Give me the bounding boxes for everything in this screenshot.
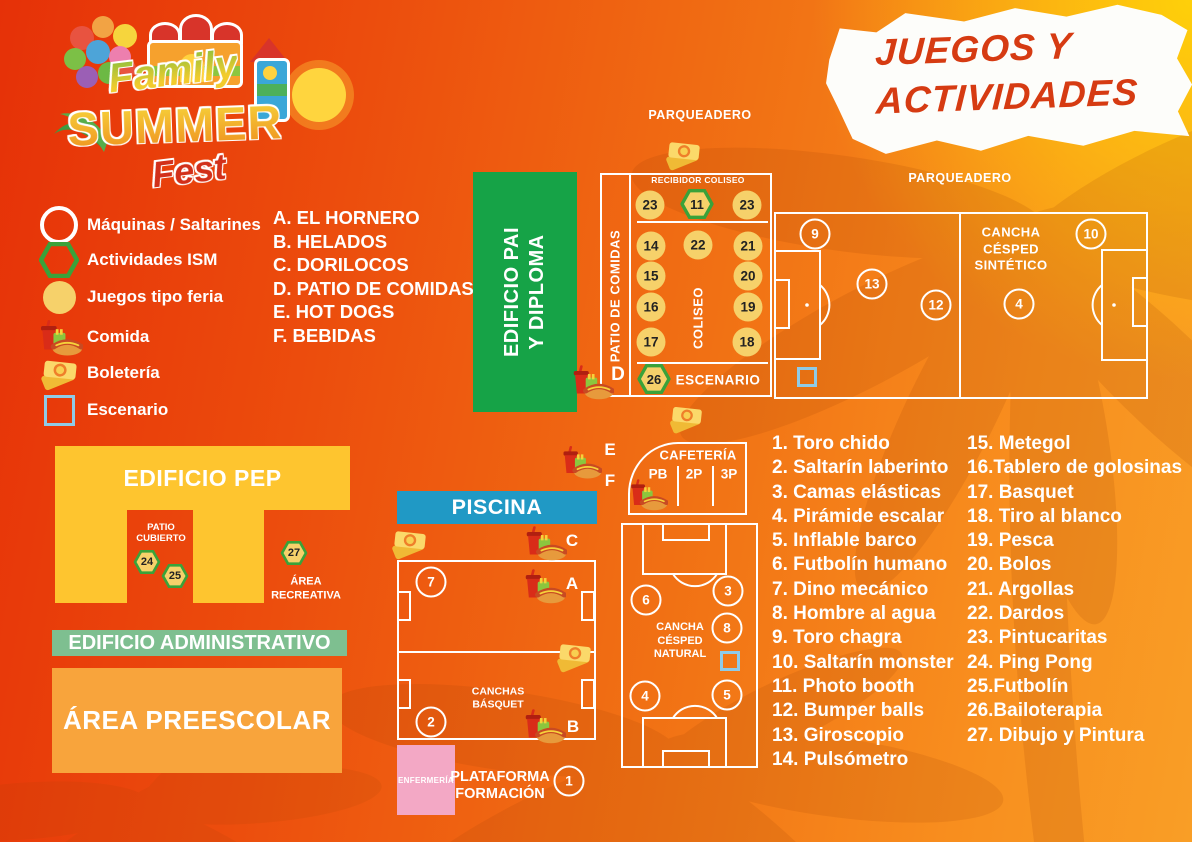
legend-label: Juegos tipo feria <box>87 287 223 307</box>
ticket-icon <box>662 135 704 173</box>
activity-item: 26.Bailoterapia <box>967 699 1182 723</box>
legend-label: Escenario <box>87 400 168 420</box>
cafeteria-floor-3p: 3P <box>721 467 738 482</box>
food-icon <box>521 524 567 562</box>
marker-sintetica-10: 10 <box>1076 219 1107 250</box>
edificio-pep-building: EDIFICIO PEP <box>55 446 350 510</box>
marker-number: 27 <box>281 541 308 565</box>
balloon <box>113 24 137 48</box>
coliseo-line-top <box>637 221 768 223</box>
food-icon <box>568 363 614 401</box>
marker-coliseo-16: 16 <box>637 293 666 322</box>
marker-coliseo-26: 26 <box>637 364 671 394</box>
legend-label: Boletería <box>87 363 160 383</box>
page-title-line2: ACTIVIDADES <box>875 71 1139 122</box>
activities-list-col2: 15. Metegol 16.Tablero de golosinas 17. … <box>967 432 1182 748</box>
marker-number: 14 <box>643 239 658 254</box>
tower-window-icon <box>263 66 277 80</box>
activity-item: 11. Photo booth <box>772 675 954 699</box>
parqueadero-right-label: PARQUEADERO <box>908 171 1011 185</box>
marker-number: 20 <box>740 269 755 284</box>
food-icon <box>33 318 85 357</box>
activity-item: 20. Bolos <box>967 553 1182 577</box>
ticket-icon <box>553 637 595 675</box>
marker-number: 3 <box>724 584 732 599</box>
marker-coliseo-22: 22 <box>684 231 713 260</box>
logo-word-summer: SUMMER <box>51 94 299 158</box>
activity-item: 4. Pirámide escalar <box>772 505 954 529</box>
marker-coliseo-21: 21 <box>734 232 763 261</box>
marker-basquet-2: 2 <box>416 707 447 738</box>
marker-number: 2 <box>427 715 435 730</box>
enfermeria-label: ENFERMERÍA <box>398 776 454 785</box>
marker-number: 8 <box>723 621 731 636</box>
legend-letter-f: F. BEBIDAS <box>273 324 474 348</box>
ticket-icon <box>666 400 706 436</box>
activity-item: 7. Dino mecánico <box>772 578 954 602</box>
activity-item: 1. Toro chido <box>772 432 954 456</box>
legend-letter-b: B. HELADOS <box>273 230 474 254</box>
marker-coliseo-14: 14 <box>637 232 666 261</box>
marker-number: 11 <box>680 189 714 219</box>
patio-cubierto-label: PATIO CUBIERTO <box>136 522 185 544</box>
marker-sintetica-4: 4 <box>1004 289 1035 320</box>
square-outline-icon <box>33 395 85 426</box>
parqueadero-left-label: PARQUEADERO <box>648 108 751 122</box>
marker-number: 18 <box>739 335 754 350</box>
map-letter-e: E <box>604 440 615 460</box>
page-title-line1: JUEGOS Y <box>874 25 1073 74</box>
sun-icon <box>292 68 346 122</box>
activity-item: 27. Dibujo y Pintura <box>967 724 1182 748</box>
map-letter-c: C <box>566 531 578 551</box>
marker-number: 1 <box>565 774 573 789</box>
activity-item: 22. Dardos <box>967 602 1182 626</box>
patio-de-comidas-label: PATIO DE COMIDAS <box>608 230 623 362</box>
legend-letter-d: D. PATIO DE COMIDAS <box>273 277 474 301</box>
activity-item: 18. Tiro al blanco <box>967 505 1182 529</box>
legend-label: Máquinas / Saltarines <box>87 215 261 235</box>
marker-natural-6: 6 <box>631 585 662 616</box>
family-summer-fest-logo: Family SUMMER Fest <box>52 10 352 210</box>
edificio-administrativo-building: EDIFICIO ADMINISTRATIVO <box>52 630 347 656</box>
activity-item: 17. Basquet <box>967 481 1182 505</box>
activity-item: 8. Hombre al agua <box>772 602 954 626</box>
cafeteria-divider <box>712 466 714 506</box>
area-preescolar-building: ÁREA PREESCOLAR <box>52 668 342 773</box>
marker-number: 6 <box>642 593 650 608</box>
edificio-administrativo-label: EDIFICIO ADMINISTRATIVO <box>68 632 330 655</box>
canchas-basquet-label: CANCHAS BÁSQUET <box>472 686 525 711</box>
activity-item: 2. Saltarín laberinto <box>772 456 954 480</box>
legend-row-comida: Comida <box>33 319 149 355</box>
plataforma-formacion-label: PLATAFORMA FORMACIÓN <box>450 769 549 803</box>
cafeteria-divider <box>677 466 679 506</box>
marker-natural-5: 5 <box>712 680 743 711</box>
marker-coliseo-23-right: 23 <box>733 191 762 220</box>
food-icon <box>558 444 602 480</box>
activity-item: 6. Futbolín humano <box>772 553 954 577</box>
edificio-pep-left-wing <box>55 510 127 603</box>
marker-coliseo-20: 20 <box>734 262 763 291</box>
marker-number: 10 <box>1083 227 1098 242</box>
legend-row-juegos: Juegos tipo feria <box>33 279 223 315</box>
cancha-natural-label: CANCHA CÉSPED NATURAL <box>654 621 706 662</box>
legend-label: Comida <box>87 327 149 347</box>
marker-number: 9 <box>811 227 819 242</box>
map-letter-f: F <box>605 471 615 491</box>
circle-outline-icon <box>33 206 85 244</box>
activity-item: 12. Bumper balls <box>772 699 954 723</box>
marker-natural-4: 4 <box>630 681 661 712</box>
coliseo-label: COLISEO <box>691 287 706 349</box>
legend-row-maquinas: Máquinas / Saltarines <box>33 207 261 243</box>
activity-item: 19. Pesca <box>967 529 1182 553</box>
area-recreativa-label: ÁREA RECREATIVA <box>271 576 341 603</box>
logo-word-fest: Fest <box>150 146 229 197</box>
legend-row-actividades: Actividades ISM <box>33 242 217 278</box>
activity-item: 9. Toro chagra <box>772 626 954 650</box>
enfermeria-building: ENFERMERÍA <box>397 745 455 815</box>
balloon <box>76 66 98 88</box>
map-letter-a: A <box>566 574 578 594</box>
title-brush-background: JUEGOS Y ACTIVIDADES <box>825 0 1192 161</box>
legend-letter-a: A. EL HORNERO <box>273 206 474 230</box>
area-preescolar-label: ÁREA PREESCOLAR <box>63 705 331 736</box>
marker-natural-8: 8 <box>712 613 743 644</box>
marker-number: 4 <box>1015 297 1023 312</box>
recibidor-coliseo-label: RECIBIDOR COLISEO <box>651 175 744 185</box>
activity-item: 15. Metegol <box>967 432 1182 456</box>
marker-pep-25: 25 <box>162 564 189 588</box>
cafeteria-floor-2p: 2P <box>686 467 703 482</box>
marker-pep-24: 24 <box>134 550 161 574</box>
activity-item: 16.Tablero de golosinas <box>967 456 1182 480</box>
legend-letter-e: E. HOT DOGS <box>273 300 474 324</box>
activity-item: 3. Camas elásticas <box>772 481 954 505</box>
marker-coliseo-15: 15 <box>637 262 666 291</box>
marker-number: 15 <box>643 269 658 284</box>
marker-number: 16 <box>643 300 658 315</box>
food-letter-legend: A. EL HORNERO B. HELADOS C. DORILOCOS D.… <box>273 206 474 348</box>
escenario-square-sintetica <box>797 367 817 387</box>
marker-number: 13 <box>864 277 879 292</box>
edificio-pep-center-wing <box>193 510 264 603</box>
escenario-square-natural <box>720 651 740 671</box>
marker-number: 24 <box>134 550 161 574</box>
activity-item: 21. Argollas <box>967 578 1182 602</box>
map-letter-b: B <box>567 717 579 737</box>
marker-number: 19 <box>740 300 755 315</box>
coliseo-divider <box>629 173 631 397</box>
marker-number: 21 <box>740 239 755 254</box>
marker-number: 17 <box>643 335 658 350</box>
marker-coliseo-17: 17 <box>637 328 666 357</box>
marker-natural-3: 3 <box>713 576 744 607</box>
marker-coliseo-18: 18 <box>733 328 762 357</box>
piscina-label: PISCINA <box>452 495 543 520</box>
legend-row-escenario: Escenario <box>33 392 168 428</box>
marker-number: 23 <box>642 198 657 213</box>
marker-number: 12 <box>928 298 943 313</box>
legend-letter-c: C. DORILOCOS <box>273 253 474 277</box>
escenario-label: ESCENARIO <box>676 373 761 388</box>
legend-label: Actividades ISM <box>87 250 217 270</box>
activities-list-col1: 1. Toro chido 2. Saltarín laberinto 3. C… <box>772 432 954 772</box>
marker-coliseo-19: 19 <box>734 293 763 322</box>
marker-number: 25 <box>162 564 189 588</box>
piscina-building: PISCINA <box>397 491 597 524</box>
ticket-icon <box>388 524 430 562</box>
activity-item: 14. Pulsómetro <box>772 748 954 772</box>
activity-item: 5. Inflable barco <box>772 529 954 553</box>
hexagon-outline-icon <box>33 242 85 278</box>
marker-coliseo-11: 11 <box>680 189 714 219</box>
marker-number: 26 <box>637 364 671 394</box>
ticket-icon <box>33 353 85 393</box>
marker-pep-27: 27 <box>281 541 308 565</box>
food-icon <box>626 477 668 512</box>
edificio-pep-label: EDIFICIO PEP <box>123 465 281 492</box>
legend-row-boleteria: Boletería <box>33 355 160 391</box>
activity-item: 24. Ping Pong <box>967 651 1182 675</box>
yellow-circle-icon <box>33 281 85 314</box>
food-icon <box>520 567 566 605</box>
activity-item: 25.Futbolín <box>967 675 1182 699</box>
marker-number: 4 <box>641 689 649 704</box>
marker-sintetica-12: 12 <box>921 290 952 321</box>
activity-item: 23. Pintucaritas <box>967 626 1182 650</box>
edificio-pai-label: EDIFICIO PAI Y DIPLOMA <box>500 227 550 357</box>
activity-item: 13. Giroscopio <box>772 724 954 748</box>
activity-item: 10. Saltarín monster <box>772 651 954 675</box>
marker-number: 5 <box>723 688 731 703</box>
cafeteria-label: CAFETERÍA <box>659 448 736 463</box>
food-icon <box>520 707 566 745</box>
marker-number: 22 <box>690 238 705 253</box>
marker-basquet-7: 7 <box>416 567 447 598</box>
marker-coliseo-23-left: 23 <box>636 191 665 220</box>
marker-number: 7 <box>427 575 435 590</box>
marker-sintetica-13: 13 <box>857 269 888 300</box>
balloon <box>92 16 114 38</box>
marker-number: 23 <box>739 198 754 213</box>
cancha-sintetica-label: CANCHA CÉSPED SINTÉTICO <box>975 224 1048 274</box>
marker-plataforma-1: 1 <box>554 766 585 797</box>
marker-sintetica-9: 9 <box>800 219 831 250</box>
festival-map-page: Family SUMMER Fest JUEGOS Y ACTIVIDADES … <box>0 0 1192 842</box>
